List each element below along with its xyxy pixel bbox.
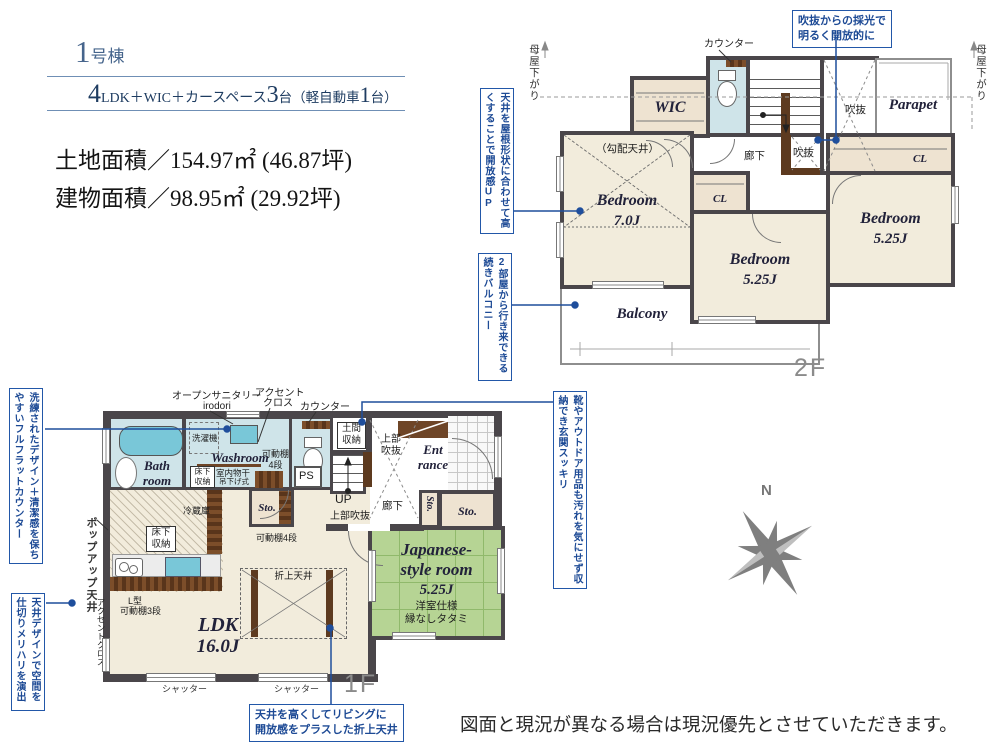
- spec-text-1: LDK＋WIC＋カースペース: [101, 91, 267, 106]
- japanese-size: 5.25J: [372, 581, 501, 599]
- sto2-label: Sto.: [442, 504, 493, 518]
- japanese-name1: Japanese-: [372, 540, 501, 560]
- cl-right-label: CL: [900, 153, 940, 166]
- washroom-sink: [230, 425, 258, 444]
- window: [698, 316, 756, 324]
- compass-north-label: N: [761, 482, 772, 499]
- closet-mid-2f: CL: [690, 171, 750, 214]
- callout-folded-line1: 天井を高くしてリビングに: [255, 708, 398, 723]
- corridor-label-2f: 廊下: [744, 150, 765, 162]
- window: [592, 281, 664, 289]
- doma-line2: 収納: [338, 435, 365, 447]
- void2-label: 吹抜: [793, 147, 814, 159]
- kitchen-sink: [165, 557, 201, 577]
- spec-num-1: 1: [360, 82, 371, 107]
- shutter-label-1: シャッター: [162, 684, 207, 695]
- callout-folded-ceiling: 天井を高くしてリビングに 開放感をプラスした折上天井: [249, 704, 404, 742]
- sliding-door-gap: [368, 550, 376, 602]
- stair-treads-1f: [333, 455, 363, 491]
- stairs-1f: [330, 452, 366, 494]
- entrance-name: Ent rance: [415, 443, 451, 473]
- window: [556, 222, 564, 258]
- upper-void-label: 上部 吹抜: [381, 434, 401, 458]
- disclaimer: 図面と現況が異なる場合は現況優先とさせていただきます。: [460, 711, 958, 737]
- drying-label2: 吊下げ式: [219, 478, 249, 487]
- title-rule-bottom: [47, 110, 405, 111]
- window: [146, 673, 216, 682]
- shelf4-line1: 可動棚: [262, 449, 289, 460]
- shelf4-label: 可動棚 4段: [262, 449, 289, 470]
- shelf-unit: [255, 471, 283, 488]
- up-label: UP: [335, 492, 352, 506]
- balcony-label: Balcony: [592, 305, 692, 323]
- burner: [129, 565, 138, 574]
- building-suffix: 号棟: [91, 47, 125, 66]
- room-toilet-2f: [706, 56, 750, 137]
- room-sto-small: Sto.: [419, 490, 440, 528]
- callout-void-light: 吹抜からの採光で 明るく開放的に: [792, 10, 892, 48]
- door-arc: [710, 139, 735, 164]
- ps-label: PS: [299, 470, 314, 483]
- callout-continuous-balcony: 2部屋から行き来できる続きバルコニー: [478, 253, 512, 381]
- shutter-label-2: シャッター: [274, 684, 319, 695]
- floorplan-sheet: 1号棟 4LDK＋WIC＋カースペース3台（軽自動車1台） 土地面積／154.9…: [0, 0, 1000, 750]
- japanese-spec1: 洋室仕様: [372, 600, 501, 612]
- lshape-label2: 可動棚3段: [120, 606, 161, 617]
- popup-ceiling-label: ポップアップ天井: [83, 517, 99, 613]
- burner: [119, 562, 129, 572]
- window: [102, 638, 110, 672]
- japanese-spec2: 縁なしタタミ: [372, 613, 501, 625]
- bedroom3-size: 5.25J: [830, 230, 951, 248]
- ps-box: PS: [294, 466, 322, 488]
- entrance-line1: Ent: [415, 443, 451, 458]
- building-number: 1: [75, 34, 91, 69]
- callout-folded-line2: 開放感をプラスした折上天井: [255, 723, 398, 738]
- window: [556, 156, 564, 192]
- counter-label-1f: カウンター: [300, 402, 350, 414]
- room-bathroom: Bath room: [108, 416, 185, 490]
- counter-side-brown: [207, 490, 222, 554]
- accent-cloth-label2: クロス: [263, 398, 293, 410]
- toilet-bowl-2f: [717, 81, 737, 107]
- moya-sagari-right: 母屋下がり: [974, 44, 989, 102]
- underfloor2-line1: 床下: [147, 527, 175, 539]
- bedroom3-name: Bedroom: [830, 209, 951, 228]
- bedroom2-name: Bedroom: [694, 250, 826, 269]
- shelf4-line2: 4段: [262, 460, 289, 471]
- room-japanese: Japanese- style room 5.25J 洋室仕様 縁なしタタミ: [368, 526, 505, 640]
- counter-label-2f: カウンター: [704, 39, 754, 51]
- callout-flat-counter: 洗練されたデザイン＋清潔感を保ちやすいフルフラットカウンター: [9, 388, 43, 564]
- ldk-size: 16.0J: [168, 636, 268, 659]
- wall: [103, 674, 378, 682]
- toilet-counter-1f: [302, 421, 330, 429]
- spec-num-4: 4: [88, 79, 101, 108]
- toilet-counter-2f: [726, 60, 746, 67]
- building-area: 建物面積／98.95㎡ (29.92坪): [55, 179, 341, 213]
- cl-mid-label: CL: [694, 193, 746, 206]
- window: [951, 186, 959, 224]
- underfloor2-line2: 収納: [147, 539, 175, 551]
- callout-ceiling-design: 天井デザインで空間を仕切りメリハリを演出: [11, 593, 45, 711]
- doma-storage-label: 土間 収納: [337, 422, 366, 449]
- underfloor-line2: 収納: [191, 477, 214, 487]
- stair-rail-2f: [781, 93, 790, 137]
- compass-rose: [715, 498, 825, 608]
- ceiling-beam: [326, 570, 333, 637]
- underfloor-storage-2: 床下 収納: [146, 526, 176, 552]
- bedroom2-size: 5.25J: [694, 271, 826, 289]
- parapet-area: Parapet: [875, 58, 952, 135]
- door-gap: [348, 524, 390, 531]
- washer-label: 洗濯機: [192, 433, 218, 443]
- spec-num-3: 3: [267, 82, 279, 108]
- window: [392, 632, 436, 640]
- window: [497, 548, 505, 594]
- closet-right-2f: CL: [826, 133, 955, 175]
- fridge-label: 冷蔵庫: [183, 506, 210, 517]
- spec-text-2: 台（軽自動車: [279, 90, 360, 105]
- stove: [115, 558, 143, 577]
- building-title: 1号棟: [75, 34, 125, 70]
- callout-void-light-line1: 吹抜からの採光で: [798, 14, 886, 29]
- layout-spec: 4LDK＋WIC＋カースペース3台（軽自動車1台）: [88, 79, 398, 109]
- callout-high-ceiling: 天井を屋根形状に合わせて高くすることで開放感UP: [480, 88, 514, 234]
- underfloor-line1: 床下: [191, 467, 214, 477]
- bathroom-name2: room: [133, 473, 181, 489]
- entrance-door-gap: [494, 436, 502, 478]
- window: [258, 673, 328, 682]
- callout-genkan-storage: 靴やアウトドア用品も汚れを気にせず収納でき玄関スッキリ: [553, 391, 587, 589]
- window: [226, 411, 260, 418]
- land-area: 土地面積／154.97㎡ (46.87坪): [55, 141, 352, 175]
- open-sanitary-sub: irodori: [203, 401, 231, 413]
- entry-step: [398, 421, 448, 438]
- entrance-line2: rance: [415, 458, 451, 473]
- spec-text-3: 台）: [371, 90, 398, 105]
- bedroom1-name: Bedroom: [564, 191, 690, 210]
- room-sto-2: Sto.: [438, 490, 497, 530]
- ldk-name: LDK: [168, 613, 268, 637]
- window: [102, 428, 110, 464]
- upper-void2-label: 上部吹抜: [330, 511, 370, 523]
- bedroom1-size: 7.0J: [564, 212, 690, 230]
- void-wall-horiz: [781, 168, 823, 175]
- underfloor-storage-1: 床下 収納: [190, 466, 215, 488]
- parapet-label: Parapet: [877, 96, 949, 114]
- bathtub: [119, 426, 183, 456]
- callout-void-light-line2: 明るく開放的に: [798, 29, 886, 44]
- upper-void-line2: 吹抜: [381, 446, 401, 458]
- upper-void-line1: 上部: [381, 434, 401, 446]
- corridor-label-1f: 廊下: [382, 500, 403, 512]
- moya-sagari-left: 母屋下がり: [527, 44, 542, 102]
- stair-rail-1f: [363, 452, 372, 487]
- void1-label: 吹抜: [845, 104, 866, 116]
- counter-front-brown: [110, 577, 222, 591]
- shelf4b-label: 可動棚4段: [256, 533, 297, 544]
- title-rule-top: [47, 76, 405, 77]
- floor-label-1f: 1F: [344, 670, 377, 699]
- doma-line1: 土間: [338, 423, 365, 435]
- wall: [366, 413, 372, 455]
- sto-small-label: Sto.: [423, 496, 435, 512]
- toilet-tank-2f: [718, 70, 736, 81]
- japanese-name2: style room: [372, 560, 501, 580]
- wic-label: WIC: [634, 98, 706, 117]
- room-wic: WIC: [630, 76, 710, 138]
- floor-label-2f: 2F: [794, 354, 827, 383]
- toilet-tank-1f: [304, 437, 322, 448]
- bathroom-name1: Bath: [133, 458, 181, 474]
